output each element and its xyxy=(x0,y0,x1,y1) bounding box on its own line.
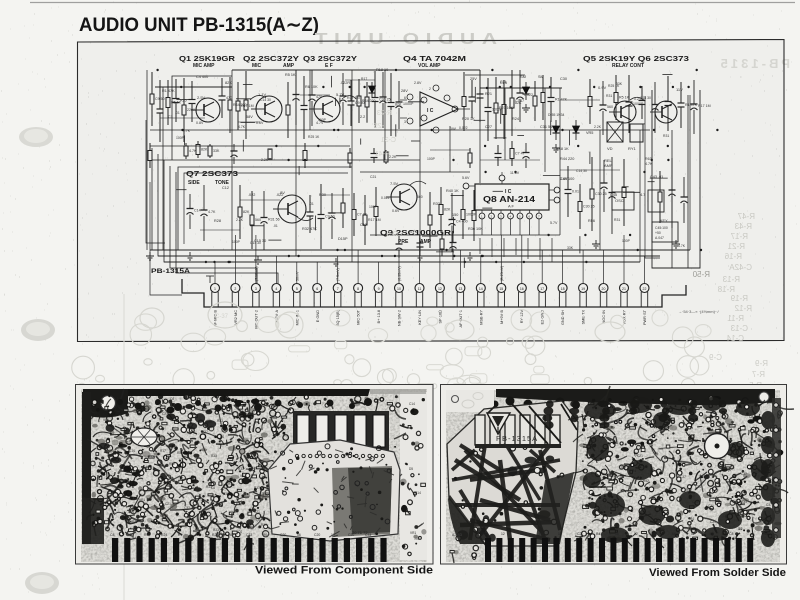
svg-text:SIDE: SIDE xyxy=(188,180,200,186)
svg-text:21: 21 xyxy=(622,287,626,291)
svg-text:C-42A: C-42A xyxy=(729,263,752,272)
svg-text:R-17: R-17 xyxy=(730,232,748,241)
svg-text:R63: R63 xyxy=(645,157,652,161)
svg-text:4.7K: 4.7K xyxy=(183,129,191,133)
svg-text:0.8V: 0.8V xyxy=(196,121,204,125)
svg-text:33K: 33K xyxy=(213,149,220,153)
svg-text:SM: SM xyxy=(538,75,544,79)
svg-text:C30 25: C30 25 xyxy=(595,192,607,196)
svg-text:16: 16 xyxy=(520,287,524,291)
svg-text:PB-1315A: PB-1315A xyxy=(496,434,538,443)
svg-text:6: 6 xyxy=(404,96,406,100)
svg-text:R-11: R-11 xyxy=(727,314,744,323)
svg-text:R33: R33 xyxy=(206,485,212,489)
svg-text:R25 1K: R25 1K xyxy=(308,135,320,139)
svg-text:R52: R52 xyxy=(148,455,154,459)
svg-text:560: 560 xyxy=(607,105,613,109)
svg-text:2: 2 xyxy=(429,87,431,91)
svg-text:E·GND: E·GND xyxy=(316,310,320,322)
svg-text:R17 1M: R17 1M xyxy=(698,104,711,108)
svg-text:Viewed From Solder Side: Viewed From Solder Side xyxy=(649,567,786,579)
svg-text:R17: R17 xyxy=(254,486,260,490)
svg-text:VR2·MC: VR2·MC xyxy=(234,310,238,325)
svg-text:R21: R21 xyxy=(485,92,492,96)
svg-text:R24: R24 xyxy=(212,533,218,537)
svg-text:R9: R9 xyxy=(178,533,182,537)
svg-text:VR1: VR1 xyxy=(139,498,145,502)
svg-text:C21: C21 xyxy=(500,80,506,84)
svg-text:C21: C21 xyxy=(370,175,376,179)
svg-text:M+9V·B: M+9V·B xyxy=(500,310,504,324)
svg-text:2.2: 2.2 xyxy=(360,115,365,119)
svg-text:2.2K: 2.2K xyxy=(236,218,244,222)
svg-text:SM: SM xyxy=(520,74,526,79)
svg-text:7.5V: 7.5V xyxy=(390,181,399,186)
svg-text:PB-1315A: PB-1315A xyxy=(151,269,191,275)
svg-text:(B.25mV): (B.25mV) xyxy=(500,266,504,281)
svg-text:C20: C20 xyxy=(577,532,583,536)
svg-text:56: 56 xyxy=(672,532,676,536)
svg-text:R33: R33 xyxy=(741,500,747,504)
svg-text:17: 17 xyxy=(540,287,544,291)
svg-text:11: 11 xyxy=(418,287,422,291)
svg-text:C14: C14 xyxy=(129,449,135,453)
svg-text:14: 14 xyxy=(479,287,483,291)
svg-text:C30 25: C30 25 xyxy=(379,98,391,102)
svg-text:R5 1K: R5 1K xyxy=(285,73,296,77)
svg-text:R-41: R-41 xyxy=(375,151,390,158)
svg-text:R17 1M: R17 1M xyxy=(368,218,381,222)
svg-text:470: 470 xyxy=(316,95,322,99)
svg-text:R31: R31 xyxy=(606,94,612,98)
svg-text:0.6V: 0.6V xyxy=(256,121,264,125)
svg-text:VR1: VR1 xyxy=(240,474,246,478)
svg-text:18: 18 xyxy=(561,287,565,291)
svg-text:-59: -59 xyxy=(414,536,421,541)
svg-text:0.022: 0.022 xyxy=(459,126,468,130)
svg-text:4: 4 xyxy=(275,287,277,291)
svg-text:470: 470 xyxy=(226,96,232,100)
svg-text:R25: R25 xyxy=(180,99,187,103)
svg-text:R17 1M: R17 1M xyxy=(241,104,254,108)
svg-text:VR1: VR1 xyxy=(226,482,232,486)
svg-text:R41: R41 xyxy=(596,532,602,536)
svg-text:R20 1K: R20 1K xyxy=(462,117,475,121)
svg-text:VR5: VR5 xyxy=(586,131,593,135)
svg-text:25V: 25V xyxy=(470,77,477,81)
svg-text:20: 20 xyxy=(602,287,606,291)
svg-text:R-19: R-19 xyxy=(730,294,748,303)
svg-text:2.2K: 2.2K xyxy=(261,158,269,162)
svg-text:C31 50: C31 50 xyxy=(540,125,552,129)
svg-text:C21: C21 xyxy=(710,520,716,524)
svg-text:12: 12 xyxy=(634,532,638,536)
svg-text:2.5V: 2.5V xyxy=(197,95,206,100)
svg-text:MIC·IN·1: MIC·IN·1 xyxy=(295,310,299,325)
svg-text:28V: 28V xyxy=(401,89,408,93)
svg-text:100P: 100P xyxy=(176,136,185,140)
svg-text:L2: L2 xyxy=(718,427,722,431)
svg-text:R33: R33 xyxy=(238,467,244,471)
svg-text:R4: R4 xyxy=(690,517,694,521)
svg-text:MIC·50T: MIC·50T xyxy=(357,309,361,324)
svg-text:R24: R24 xyxy=(161,533,167,537)
svg-text:12: 12 xyxy=(691,532,695,536)
svg-text:R17: R17 xyxy=(361,77,367,81)
svg-text:R1 47K: R1 47K xyxy=(162,89,175,93)
svg-text:RELAY CONT: RELAY CONT xyxy=(612,63,644,69)
svg-text:58V: 58V xyxy=(246,115,253,119)
svg-text:R9: R9 xyxy=(263,533,267,537)
svg-text:+50: +50 xyxy=(655,231,661,235)
svg-text:AUDIO UNIT PB-1315(A∼Z): AUDIO UNIT PB-1315(A∼Z) xyxy=(79,15,319,36)
svg-text:VD: VD xyxy=(607,146,613,151)
svg-text:C21: C21 xyxy=(708,504,714,508)
svg-text:C20: C20 xyxy=(482,532,488,536)
svg-text:C-14: C-14 xyxy=(726,334,744,343)
svg-text:82K: 82K xyxy=(444,208,451,212)
svg-text:Q2: Q2 xyxy=(634,453,638,457)
svg-text:C-31: C-31 xyxy=(381,137,396,144)
svg-text:4.7K: 4.7K xyxy=(410,230,418,234)
svg-text:4.7K: 4.7K xyxy=(678,244,686,248)
svg-text:C14: C14 xyxy=(409,402,415,406)
svg-text:R-43: R-43 xyxy=(734,222,752,231)
svg-text:R1 47K: R1 47K xyxy=(555,98,568,102)
svg-text:R40 1K: R40 1K xyxy=(446,189,459,193)
svg-text:4.7K: 4.7K xyxy=(645,162,653,166)
svg-text:C4 400: C4 400 xyxy=(456,220,468,224)
svg-text:9: 9 xyxy=(378,287,380,291)
svg-text:4.7K: 4.7K xyxy=(238,125,246,129)
svg-text:VOL AMP: VOL AMP xyxy=(418,63,441,69)
svg-text:O-9: O-9 xyxy=(386,231,398,238)
svg-text:C37: C37 xyxy=(184,506,190,510)
svg-text:.022: .022 xyxy=(276,193,283,197)
svg-text:50mV: 50mV xyxy=(295,271,299,281)
svg-text:NB·SW·2: NB·SW·2 xyxy=(398,310,402,326)
svg-text:Q4 TA 7042M: Q4 TA 7042M xyxy=(403,54,466,63)
svg-text:82K: 82K xyxy=(201,148,208,152)
svg-text:150: 150 xyxy=(452,213,458,217)
svg-text:D5: D5 xyxy=(649,443,653,447)
svg-text:C-13: C-13 xyxy=(730,324,748,333)
svg-text:1000P: 1000P xyxy=(466,213,477,217)
svg-text:C49 100: C49 100 xyxy=(560,177,574,181)
svg-text:R56: R56 xyxy=(588,219,595,223)
svg-text:R-7: R-7 xyxy=(752,370,765,379)
svg-text:56: 56 xyxy=(710,532,714,536)
svg-text:R44 220: R44 220 xyxy=(560,157,574,161)
svg-text:82K: 82K xyxy=(243,210,250,214)
svg-text:.01: .01 xyxy=(273,224,278,228)
svg-text:(0.35mV): (0.35mV) xyxy=(398,266,402,281)
svg-text:R-50: R-50 xyxy=(692,270,710,279)
svg-text:GND·SH: GND·SH xyxy=(561,310,565,325)
svg-text:SP·16Ω: SP·16Ω xyxy=(438,310,442,324)
svg-text:AMP: AMP xyxy=(283,63,295,69)
svg-text:SQ·15(B): SQ·15(B) xyxy=(336,309,340,326)
svg-text:5: 5 xyxy=(296,287,298,291)
svg-text:A.047: A.047 xyxy=(655,236,664,240)
svg-text:C4 400: C4 400 xyxy=(196,75,208,79)
svg-text:0.9V: 0.9V xyxy=(598,85,607,90)
svg-text:C21: C21 xyxy=(162,412,168,416)
svg-text:Q2: Q2 xyxy=(238,530,242,534)
svg-text:R17: R17 xyxy=(202,430,208,434)
svg-text:12: 12 xyxy=(501,532,505,536)
svg-text:R33: R33 xyxy=(433,202,440,206)
svg-text:C37: C37 xyxy=(741,472,747,476)
svg-text:R52: R52 xyxy=(643,479,649,483)
svg-text:C12: C12 xyxy=(222,186,229,190)
svg-text:C21: C21 xyxy=(695,485,701,489)
svg-text:33K: 33K xyxy=(567,246,574,250)
svg-text:12: 12 xyxy=(558,532,562,536)
svg-text:PWR·ST: PWR·ST xyxy=(643,309,647,325)
svg-text:C27: C27 xyxy=(485,125,492,129)
svg-text:E F: E F xyxy=(325,63,333,69)
svg-text:C-9: C-9 xyxy=(709,353,722,362)
svg-text:R9: R9 xyxy=(539,532,543,536)
svg-text:1: 1 xyxy=(214,287,216,291)
svg-text:56: 56 xyxy=(615,532,619,536)
svg-text:R52: R52 xyxy=(727,423,733,427)
svg-text:.022R: .022R xyxy=(340,81,350,85)
svg-text:R31: R31 xyxy=(663,134,669,138)
svg-text:(T.16mV): (T.16mV) xyxy=(254,266,258,281)
svg-text:5.6V: 5.6V xyxy=(462,176,470,180)
svg-text:R18 10: R18 10 xyxy=(376,68,388,72)
svg-text:C14: C14 xyxy=(415,491,421,495)
svg-text:10: 10 xyxy=(397,287,401,291)
svg-text:D-55 1N34: D-55 1N34 xyxy=(548,113,565,117)
svg-text:R-21: R-21 xyxy=(727,242,745,251)
svg-text:C14 30: C14 30 xyxy=(576,169,587,173)
svg-text:KEY·LIN: KEY·LIN xyxy=(418,310,422,325)
svg-text:C14: C14 xyxy=(128,510,134,514)
svg-text:82K: 82K xyxy=(225,81,232,85)
svg-text:3: 3 xyxy=(404,120,406,124)
svg-text:C43 .01: C43 .01 xyxy=(650,175,663,179)
svg-text:R17 1M: R17 1M xyxy=(347,96,360,100)
svg-text:R52: R52 xyxy=(169,462,175,466)
svg-text:C21: C21 xyxy=(165,502,171,506)
svg-text:R30: R30 xyxy=(319,193,326,197)
svg-text:MIC: MIC xyxy=(252,63,262,69)
svg-text:R33: R33 xyxy=(211,454,217,458)
svg-text:R25 1K: R25 1K xyxy=(608,84,620,88)
svg-text:.01: .01 xyxy=(309,202,314,206)
svg-text:Q2 2SC372Y: Q2 2SC372Y xyxy=(243,54,299,63)
svg-text:R28: R28 xyxy=(214,219,221,223)
svg-text:100P: 100P xyxy=(232,240,241,244)
svg-text:560: 560 xyxy=(417,195,423,199)
svg-text:Q5 2SK19Y Q6 2SC373: Q5 2SK19Y Q6 2SC373 xyxy=(583,54,689,63)
svg-text:→·54·3—« ·(4½mm)··/: →·54·3—« ·(4½mm)··/ xyxy=(678,309,720,314)
svg-text:C14 30: C14 30 xyxy=(260,98,271,102)
svg-text:22: 22 xyxy=(643,287,647,291)
svg-text:VR1: VR1 xyxy=(103,418,109,422)
svg-text:82 83: 82 83 xyxy=(452,532,463,537)
svg-text:R33: R33 xyxy=(217,419,223,423)
svg-text:C37: C37 xyxy=(766,503,772,507)
svg-text:11V: 11V xyxy=(676,87,683,92)
svg-text:VR1: VR1 xyxy=(410,531,416,535)
svg-text:AF·OUT·1: AF·OUT·1 xyxy=(459,310,463,328)
svg-text:C14: C14 xyxy=(194,209,201,213)
svg-text:2.2K: 2.2K xyxy=(594,125,602,129)
svg-text:0.01: 0.01 xyxy=(572,190,579,194)
svg-text:C1: C1 xyxy=(168,115,173,119)
svg-text:Q2: Q2 xyxy=(727,468,731,472)
svg-text:-25: -25 xyxy=(374,123,384,130)
svg-text:Q2: Q2 xyxy=(107,454,111,458)
svg-text:R52: R52 xyxy=(177,451,183,455)
svg-text:1000P: 1000P xyxy=(403,102,414,106)
svg-text:R4: R4 xyxy=(220,435,224,439)
svg-text:C17: C17 xyxy=(360,223,367,227)
svg-text:R5 1K: R5 1K xyxy=(619,96,630,100)
svg-text:6: 6 xyxy=(316,287,318,291)
svg-text:R9: R9 xyxy=(144,533,148,537)
svg-text:C20: C20 xyxy=(280,533,286,537)
svg-text:C14 30: C14 30 xyxy=(640,96,651,100)
svg-text:.01: .01 xyxy=(175,111,180,115)
svg-text:R24: R24 xyxy=(512,117,519,121)
svg-text:2.8V: 2.8V xyxy=(414,81,422,85)
svg-text:R33: R33 xyxy=(213,528,219,532)
svg-text:MSB·RY: MSB·RY xyxy=(479,310,483,325)
svg-text:D5: D5 xyxy=(409,467,413,471)
svg-text:C8: C8 xyxy=(729,532,733,536)
svg-text:R36 10K: R36 10K xyxy=(468,227,483,231)
svg-text:C21: C21 xyxy=(254,510,260,514)
svg-text:15: 15 xyxy=(499,287,503,291)
svg-text:4.7K: 4.7K xyxy=(208,210,216,214)
svg-text:C30 25: C30 25 xyxy=(583,205,595,209)
svg-text:R32 47K: R32 47K xyxy=(302,227,317,231)
svg-text:C45: C45 xyxy=(610,193,617,197)
svg-text:0.022: 0.022 xyxy=(381,196,390,200)
svg-text:3: 3 xyxy=(255,287,257,291)
svg-text:C20: C20 xyxy=(127,533,133,537)
svg-text:C14 30: C14 30 xyxy=(250,241,261,245)
svg-text:C14: C14 xyxy=(236,501,242,505)
svg-text:B+·13.8: B+·13.8 xyxy=(377,310,381,323)
svg-text:70 71 72: 70 71 72 xyxy=(352,530,368,535)
svg-text:RY1: RY1 xyxy=(628,146,636,151)
svg-text:SME·TX: SME·TX xyxy=(582,310,586,325)
svg-text:1W: 1W xyxy=(450,127,456,131)
svg-text:C37: C37 xyxy=(680,475,686,479)
svg-text:C-37: C-37 xyxy=(215,314,229,320)
svg-text:R-13: R-13 xyxy=(722,275,740,284)
svg-text:19: 19 xyxy=(581,287,585,291)
svg-text:R33: R33 xyxy=(261,523,267,527)
svg-text:100P: 100P xyxy=(369,205,378,209)
svg-text:12: 12 xyxy=(438,287,442,291)
svg-text:R31 56: R31 56 xyxy=(268,218,280,222)
svg-text:12: 12 xyxy=(195,533,199,537)
svg-text:56: 56 xyxy=(229,533,233,537)
svg-text:R-16: R-16 xyxy=(724,252,742,261)
svg-text:560: 560 xyxy=(255,218,261,222)
svg-text:R31: R31 xyxy=(614,218,620,222)
svg-text:100P: 100P xyxy=(318,118,327,122)
svg-text:C30: C30 xyxy=(560,77,567,81)
svg-text:Q7 2SC373: Q7 2SC373 xyxy=(186,169,238,178)
svg-text:56: 56 xyxy=(297,533,301,537)
svg-text:5.7V: 5.7V xyxy=(550,221,558,225)
svg-text:R-23: R-23 xyxy=(377,110,392,117)
svg-text:C33: C33 xyxy=(246,533,252,537)
svg-text:4.7: 4.7 xyxy=(640,193,645,197)
svg-text:R17: R17 xyxy=(160,449,166,453)
svg-text:C14: C14 xyxy=(609,474,615,478)
svg-text:13: 13 xyxy=(458,287,462,291)
svg-text:R-47: R-47 xyxy=(737,212,755,221)
svg-text:100P: 100P xyxy=(427,157,436,161)
svg-text:11.5V: 11.5V xyxy=(510,171,520,175)
svg-text:100P: 100P xyxy=(622,239,631,243)
svg-text:(7.5mV): (7.5mV) xyxy=(336,268,340,281)
svg-text:C20: C20 xyxy=(314,533,320,537)
svg-text:56: 56 xyxy=(653,532,657,536)
svg-text:C37: C37 xyxy=(223,492,229,496)
svg-text:Viewed From Component Side: Viewed From Component Side xyxy=(255,565,433,577)
svg-text:Q3 2SC372Y: Q3 2SC372Y xyxy=(303,54,357,63)
svg-text:VR1: VR1 xyxy=(130,520,136,524)
svg-text:C8: C8 xyxy=(110,533,114,537)
svg-text:0.022: 0.022 xyxy=(524,93,533,97)
svg-text:Q2: Q2 xyxy=(170,397,174,401)
svg-text:220K: 220K xyxy=(187,108,196,112)
svg-text:C45:100: C45:100 xyxy=(655,226,668,230)
svg-text:R-9: R-9 xyxy=(755,359,768,368)
svg-text:MIC AMP: MIC AMP xyxy=(193,63,215,69)
svg-text:I C: I C xyxy=(427,108,434,114)
svg-text:C7 47: C7 47 xyxy=(515,99,524,103)
svg-text:.022: .022 xyxy=(248,193,255,197)
svg-text:AGC·IN: AGC·IN xyxy=(602,310,606,324)
svg-text:12: 12 xyxy=(331,533,335,537)
svg-text:8: 8 xyxy=(357,287,359,291)
svg-text:RY·12V: RY·12V xyxy=(520,310,524,324)
svg-text:D5: D5 xyxy=(738,527,742,531)
svg-text:12: 12 xyxy=(520,532,524,536)
svg-text:Q1 2SK19GR: Q1 2SK19GR xyxy=(179,54,236,63)
svg-text:0.6V: 0.6V xyxy=(392,209,400,213)
svg-text:2: 2 xyxy=(234,287,236,291)
svg-text:R-18: R-18 xyxy=(717,285,735,294)
svg-text:R-12: R-12 xyxy=(734,304,752,313)
svg-text:Q2: Q2 xyxy=(256,518,260,522)
svg-text:R6 10K: R6 10K xyxy=(305,85,318,89)
svg-text:A F: A F xyxy=(508,204,515,209)
svg-text:D15P: D15P xyxy=(338,237,348,241)
svg-text:OSC: OSC xyxy=(615,198,624,203)
svg-text:7: 7 xyxy=(337,287,339,291)
